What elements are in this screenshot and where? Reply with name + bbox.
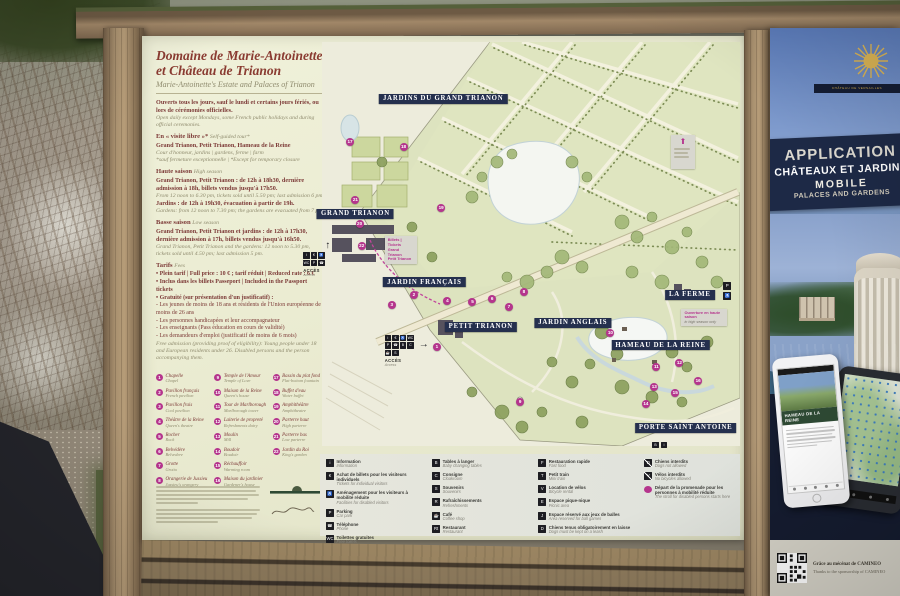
legend-icon: D [538,525,546,533]
cafe-icon: ☕ [385,350,392,357]
app-panel: CHÂTEAU DE VERSAILLES APPLICATION CHÂTEA… [770,28,900,596]
fee-bullet: Gratuité (sur présentation d'un justific… [156,295,324,303]
map-marker: 16 [694,377,702,385]
legend-icon: J [538,512,546,520]
info-board: Domaine de Marie-Antoinette et Château d… [142,36,744,540]
map-area-label: LA FERME [665,290,715,300]
parking-icon: P [385,342,392,349]
opening-fr: Ouverts tous les jours, sauf le lundi et… [156,99,319,114]
legend-label-en: Picnic area [549,504,590,509]
landmark-column-2: 9 Temple de l'Amour Temple of Love 10 Ma… [214,374,269,492]
landmark-item: 12 Laiterie de propreté Refreshments dai… [214,418,269,428]
tickets-icon: € [392,335,399,342]
landmark-item: 3 Pavillon frais Cool pavilion [156,403,211,413]
low-season-fr: Basse saison [156,219,191,226]
legend-column-4: D Chiens interdits Dogs not allowed V Vé… [644,459,734,531]
fees-bullets: Plein tarif | Full price : 10 € ; tarif … [156,271,324,302]
wheelchair-icon: ♿ [318,252,325,259]
facility-icons: i € ♿ WC P ☎ B C ☕ S [385,335,414,357]
landmark-number-badge: 2 [156,389,163,396]
legend-item: V Vélos interdits No bicycles allowed [644,472,734,482]
legend-item: i Information Information [326,459,425,469]
legend-item: D Chiens interdits Dogs not allowed [644,459,734,469]
landmark-name-en: Marlborough tower [224,409,266,414]
information-icon: i [661,442,668,449]
map-marker: 5 [468,298,476,306]
no-dogs-icon: D [644,459,652,467]
legend-label-en: Restaurant [443,530,466,535]
legend-item: B Tables à langer Baby changing tables [432,459,531,469]
photo-scene: Domaine de Marie-Antoinette et Château d… [0,0,900,596]
legend-item: D Chiens tenus obligatoirement en laisse… [538,525,637,535]
gardens-hours-fr: Jardins : de 12h à 19h30, évacuation à p… [156,200,294,207]
landmark-number-badge: 11 [214,403,221,410]
map-marker: 1 [433,343,441,351]
landmark-number-badge: 12 [214,418,221,425]
map-marker: 22 [358,242,366,250]
app-title-banner: APPLICATION CHÂTEAUX ET JARDINS MOBILE P… [770,132,900,211]
legend-label-en: Baby changing tables [443,464,482,469]
landmark-name-en: King's garden [282,453,309,458]
legend-icon: ♿ [326,490,334,498]
up-arrow-icon: ↑ [325,240,330,251]
legend-label-en: No bicycles allowed [655,477,691,482]
season-note-en: in high season only [684,320,724,324]
souvenirs-icon: S [392,350,399,357]
landmark-number-badge: 20 [273,418,280,425]
toilets-icon: WC [303,260,310,267]
phone-photo [778,371,837,412]
legend-label-en: Coffee shop [443,517,465,522]
landmark-number-badge: 7 [156,462,163,469]
legend-item: R Rafraîchissements Refreshments [432,498,531,508]
legend-item: T Petit train Mini train [538,472,637,482]
landmark-item: 13 Moulin Mill [214,433,269,443]
legend-icon: E [538,498,546,506]
landmark-number-badge: 17 [273,374,280,381]
visite-heading-en: Self-guided tour* [210,134,250,140]
visite-line2: Cour d'honneur, jardins | gardens, ferme… [156,150,324,157]
legend-column-1: i Information Information € Achat de bil… [326,459,425,531]
legend-label-en: Information [337,464,361,469]
no-bicycles-icon: V [644,472,652,480]
legend-item: V Location de vélos Bicycle rental [538,485,637,495]
legend-icon: F [538,459,546,467]
landmark-number-badge: 21 [273,433,280,440]
landmark-name-en: Water buffet [282,394,305,399]
phone-app-screen: HAMEAU DE LA REINE [776,364,845,495]
legend-icon: R [432,498,440,506]
map-marker: 9 [516,398,524,406]
landmark-item: 10 Maison de la Reine Queen's house [214,389,269,399]
map-legend: i Information Information € Achat de bil… [320,454,740,536]
opening-en: Open daily except Mondays, some French p… [156,115,324,129]
map-marker: 18 [400,143,408,151]
map-marker: 17 [346,138,354,146]
landmark-number-badge: 19 [273,403,280,410]
landmark-name-en: Low parterre [282,438,307,443]
baby-icon: B [400,342,407,349]
legend-label-en: Facilities for disabled visitors [337,501,426,506]
landmark-item: 4 Théâtre de la Reine Queen's theatre [156,418,211,428]
landmark-number-badge: 4 [156,418,163,425]
board-subtitle: Marie-Antoinette's Estate and Palaces of… [156,80,324,94]
map-marker: 6 [488,295,496,303]
qr-code [777,553,807,583]
bus-icon: B [652,442,659,449]
opening-block: Ouverts tous les jours, sauf le lundi et… [156,99,324,129]
fee-bullet: Inclus dans les billets Passeport | Incl… [156,279,324,295]
landmark-number-badge: 5 [156,433,163,440]
landmark-name-en: Belvedere [166,453,185,458]
landmark-item: 15 Réchauffoir Warming room [214,462,269,472]
low-season-en: Low season [192,220,219,226]
landmark-name-en: Queen's theatre [166,424,204,429]
landmark-number-badge: 14 [214,448,221,455]
fees-block: Tarifs Fees Plein tarif | Full price : 1… [156,262,324,362]
landmark-number-badge: 13 [214,433,221,440]
sponsor-text-en: Thanks to the sponsorship of CAMINEO [813,569,885,574]
legend-column-2: B Tables à langer Baby changing tables C… [432,459,531,531]
ferme-access-icons: P ♿ [723,282,731,300]
landmark-number-badge: 3 [156,403,163,410]
wood-slats [141,540,746,596]
grand-trianon-access: ↑ i € ♿ WC P ☎ Accès Access [303,252,325,277]
signature-logo [268,505,316,519]
toilets-icon: WC [407,335,414,342]
landmark-number-badge: 6 [156,448,163,455]
legend-icon: T [538,472,546,480]
wood-post-left [103,28,144,596]
tickets-note-line: Petit Trianon [388,257,414,262]
landmark-item: 9 Temple de l'Amour Temple of Love [214,374,269,384]
map-area-label: JARDIN FRANÇAIS [383,277,466,287]
legend-item: E Espace pique-nique Picnic area [538,498,637,508]
map-marker: 15 [671,389,679,397]
legend-label-en: Souvenirs [443,490,464,495]
visite-heading-fr: En « visite libre »* [156,133,208,140]
parking-icon: P [723,282,731,290]
legend-label-en: Cloakroom [443,477,463,482]
high-season-hours-en: From 12 noon to 6.30 pm, tickets sold un… [156,193,324,200]
map-area-label: PETIT TRIANON [445,322,517,332]
legend-icon: i [326,459,334,467]
legend-label-en: Phone [337,527,359,532]
tickets-note: Billets | Tickets Grand Trianon Petit Tr… [385,236,417,264]
information-icon: i [385,335,392,342]
facility-icons: i € ♿ WC P ☎ [303,252,325,266]
landmark-item: 19 Amphithéâtre Amphitheatre [273,403,328,413]
legend-icon: C [432,472,440,480]
landmark-item: 17 Bassin du plat fond Flat-bottom fount… [273,374,328,384]
porte-icons: B i [652,442,667,449]
bridge-logo [268,484,326,500]
legend-label-en: Mini train [549,477,569,482]
legend-icon: P [326,509,334,517]
legend-label-en: The stroll for disabled persons starts h… [655,495,734,500]
landmark-name-en: Temple of Love [224,379,261,384]
map-marker: 3 [388,301,396,309]
landmark-item: 2 Pavillon français French pavilion [156,389,211,399]
visite-note: *sauf fermeture exceptionnelle | *Except… [156,157,324,164]
legend-label-en: Dogs must be kept on a leash [549,530,631,535]
visite-line1: Grand Trianon, Petit Trianon, Hameau de … [156,142,290,149]
legend-label-en: Tickets for individual visitors [337,482,426,487]
map-marker: 13 [650,383,658,391]
legend-icon: € [326,472,334,480]
landmark-number-badge: 18 [273,389,280,396]
estate-map: JARDINS DU GRAND TRIANONGRAND TRIANONJAR… [322,42,740,446]
wheelchair-icon: ♿ [400,335,407,342]
high-season-fr: Haute saison [156,168,192,175]
legend-item: ☎ Téléphone Phone [326,522,425,532]
high-season-hours-fr: Grand Trianon, Petit Trianon : de 12h à … [156,177,304,192]
free-admission-item: Les jeunes de moins de 18 ans et résiden… [156,302,324,317]
landmark-column-1: 1 Chapelle Chapel 2 Pavillon français Fr… [156,374,211,492]
landmark-item: 21 Parterre bas Low parterre [273,433,328,443]
legend-label-en: Refreshments [443,504,482,509]
landmark-item: 20 Parterre haut High parterre [273,418,328,428]
board-title-line2: et Château de Trianon [156,63,281,78]
map-marker: 8 [520,288,528,296]
landmark-name-en: Chapel [166,379,184,384]
legend-item: ☕ Café Coffee shop [432,512,531,522]
season-note-fr: Ouverture en haute saison [684,311,724,320]
smartphone-app: HAMEAU DE LA REINE [772,353,851,508]
fees-heading-fr: Tarifs [156,262,173,269]
petit-trianon-photo [799,297,835,321]
up-arrow-icon: ⬆ [674,137,692,146]
map-marker: 19 [437,204,445,212]
legend-item: C Consigne Cloakroom [432,472,531,482]
access-label-en: Access [385,363,414,367]
free-admission-en: Free admission (providing proof of eligi… [156,341,324,362]
landmark-number-badge: 1 [156,374,163,381]
map-marker: 12 [675,359,683,367]
legend-icon: Rt [432,525,440,533]
landmark-number-badge: 22 [273,448,280,455]
landmark-name-en: Queen's house [224,394,262,399]
parking-icon: P [311,260,318,267]
access-label-en: Access [303,273,325,277]
emblem-caption: CHÂTEAU DE VERSAILLES [814,84,900,93]
landmark-number-badge: 10 [214,389,221,396]
credits-small-print [156,484,260,525]
info-column: Domaine de Marie-Antoinette et Château d… [156,48,324,366]
high-season-block: Haute saison High season Grand Trianon, … [156,168,324,215]
landmark-name-en: Grotto [166,468,179,473]
right-arrow-icon: → [419,339,429,350]
fees-heading-en: Fees [174,263,185,269]
legend-item: ♿ Aménagement pour les visiteurs à mobil… [326,490,425,505]
landmark-name-en: Boudoir [224,453,240,458]
board-title-line1: Domaine de Marie-Antoinette [156,48,323,63]
free-admission-items: Les jeunes de moins de 18 ans et résiden… [156,302,324,340]
landmark-name-en: Rock [166,438,180,443]
legend-item: Départ de la promenade pour les personne… [644,485,734,500]
landmark-item: 5 Rocher Rock [156,433,211,443]
low-season-block: Basse saison Low season Grand Trianon, P… [156,219,324,258]
legend-label-en: Bicycle rental [549,490,586,495]
map-area-label: PORTE SAINT ANTOINE [635,423,737,433]
credits-block [156,484,328,525]
legend-item: J Espace réservé aux jeux de balles Area… [538,512,637,522]
petit-trianon-access: i € ♿ WC P ☎ B C ☕ S → Accès Access [385,335,414,368]
landmark-name-en: French pavilion [166,394,200,399]
wheelchair-icon: ♿ [723,292,731,300]
accessible-stroll-start-icon [644,486,652,493]
tickets-icon: € [311,252,318,259]
legend-label-en: Fast food [549,464,590,469]
fee-bullet: Plein tarif | Full price : 10 € ; tarif … [156,271,324,279]
legend-label-en: Dogs not allowed [655,464,688,469]
map-marker: 10 [606,329,614,337]
landmark-key: 1 Chapelle Chapel 2 Pavillon français Fr… [156,374,328,492]
map-marker: 20 [356,220,364,228]
landmark-item: 18 Buffet d'eau Water buffet [273,389,328,399]
legend-column-3: F Restauration rapide Fast food T Petit … [538,459,637,531]
gardens-hours-en: Gardens: from 12 noon to 7.30 pm; the ga… [156,208,324,215]
board-title: Domaine de Marie-Antoinette et Château d… [156,48,324,78]
legend-icon: B [432,459,440,467]
map-marker: 14 [642,400,650,408]
landmark-name-en: Flat-bottom fountain [282,379,320,384]
free-admission-item: Les demandeurs d'emploi (justificatif de… [156,333,324,341]
legend-label-en: Car park [337,514,353,519]
map-area-label: JARDINS DU GRAND TRIANON [379,94,507,104]
legend-item: € Achat de billets pour les visiteurs in… [326,472,425,487]
landmark-number-badge: 15 [214,462,221,469]
map-marker: 11 [652,363,660,371]
credit-logos [268,484,326,525]
free-admission-item: Les enseignants (Pass éducation en cours… [156,325,324,333]
landmark-name-en: Cool pavilion [166,409,193,414]
exit-note: ⬆ [671,135,695,169]
legend-icon: WC [326,535,334,543]
landmark-name-en: Mill [224,438,238,443]
map-marker: 2 [410,291,418,299]
landmark-name-en: Amphitheatre [282,409,308,414]
legend-item: S Souvenirs Souvenirs [432,485,531,495]
information-icon: i [303,252,310,259]
landmark-name-en: Refreshments dairy [224,424,263,429]
map-area-label: HAMEAU DE LA REINE [611,340,710,350]
home-button [812,493,822,503]
landmark-item: 6 Belvédère Belvedere [156,448,211,458]
legend-icon: V [538,485,546,493]
phone-icon: ☎ [318,260,325,267]
map-marker: 4 [443,297,451,305]
legend-icon: ☕ [432,512,440,520]
landmark-item: 14 Boudoir Boudoir [214,448,269,458]
phones-area: HAMEAU DE LA REINE [770,394,900,544]
landmark-item: 1 Chapelle Chapel [156,374,211,384]
map-marker: 7 [505,303,513,311]
legend-icon: ☎ [326,522,334,530]
cloakroom-icon: C [407,342,414,349]
self-guided-block: En « visite libre »* Self-guided tour* G… [156,133,324,164]
season-note: Ouverture en haute saison in high season… [681,309,727,326]
phone-icon: ☎ [392,342,399,349]
landmark-name-en: High parterre [282,424,309,429]
map-area-label: JARDIN ANGLAIS [534,318,611,328]
legend-item: Rt Restaurant Restaurant [432,525,531,535]
legend-icon: S [432,485,440,493]
legend-item: F Restauration rapide Fast food [538,459,637,469]
legend-item: P Parking Car park [326,509,425,519]
legend-label-en: Area reserved for ball games [549,517,620,522]
sponsor-strip: Grâce au mécénat de CAMINEO Thanks to th… [770,540,900,596]
map-area-label: GRAND TRIANON [317,209,394,219]
sun-emblem-icon [852,42,890,80]
low-season-hours-en: Grand Trianon, Petit Trianon and the gar… [156,244,324,258]
landmark-item: 11 Tour de Marlborough Marlborough tower [214,403,269,413]
landmark-item: 7 Grotte Grotto [156,462,211,472]
legend-label-fr: Aménagement pour les visiteurs à mobilit… [337,490,426,500]
low-season-hours-fr: Grand Trianon, Petit Trianon et jardins … [156,228,307,243]
wood-post-middle [744,30,773,596]
map-marker: 21 [351,196,359,204]
phone-text [782,421,840,454]
high-season-en: High season [194,169,222,175]
landmark-name-en: Warming room [224,468,250,473]
landmark-number-badge: 9 [214,374,221,381]
sponsor-text-fr: Grâce au mécénat de CAMINEO [813,562,885,567]
